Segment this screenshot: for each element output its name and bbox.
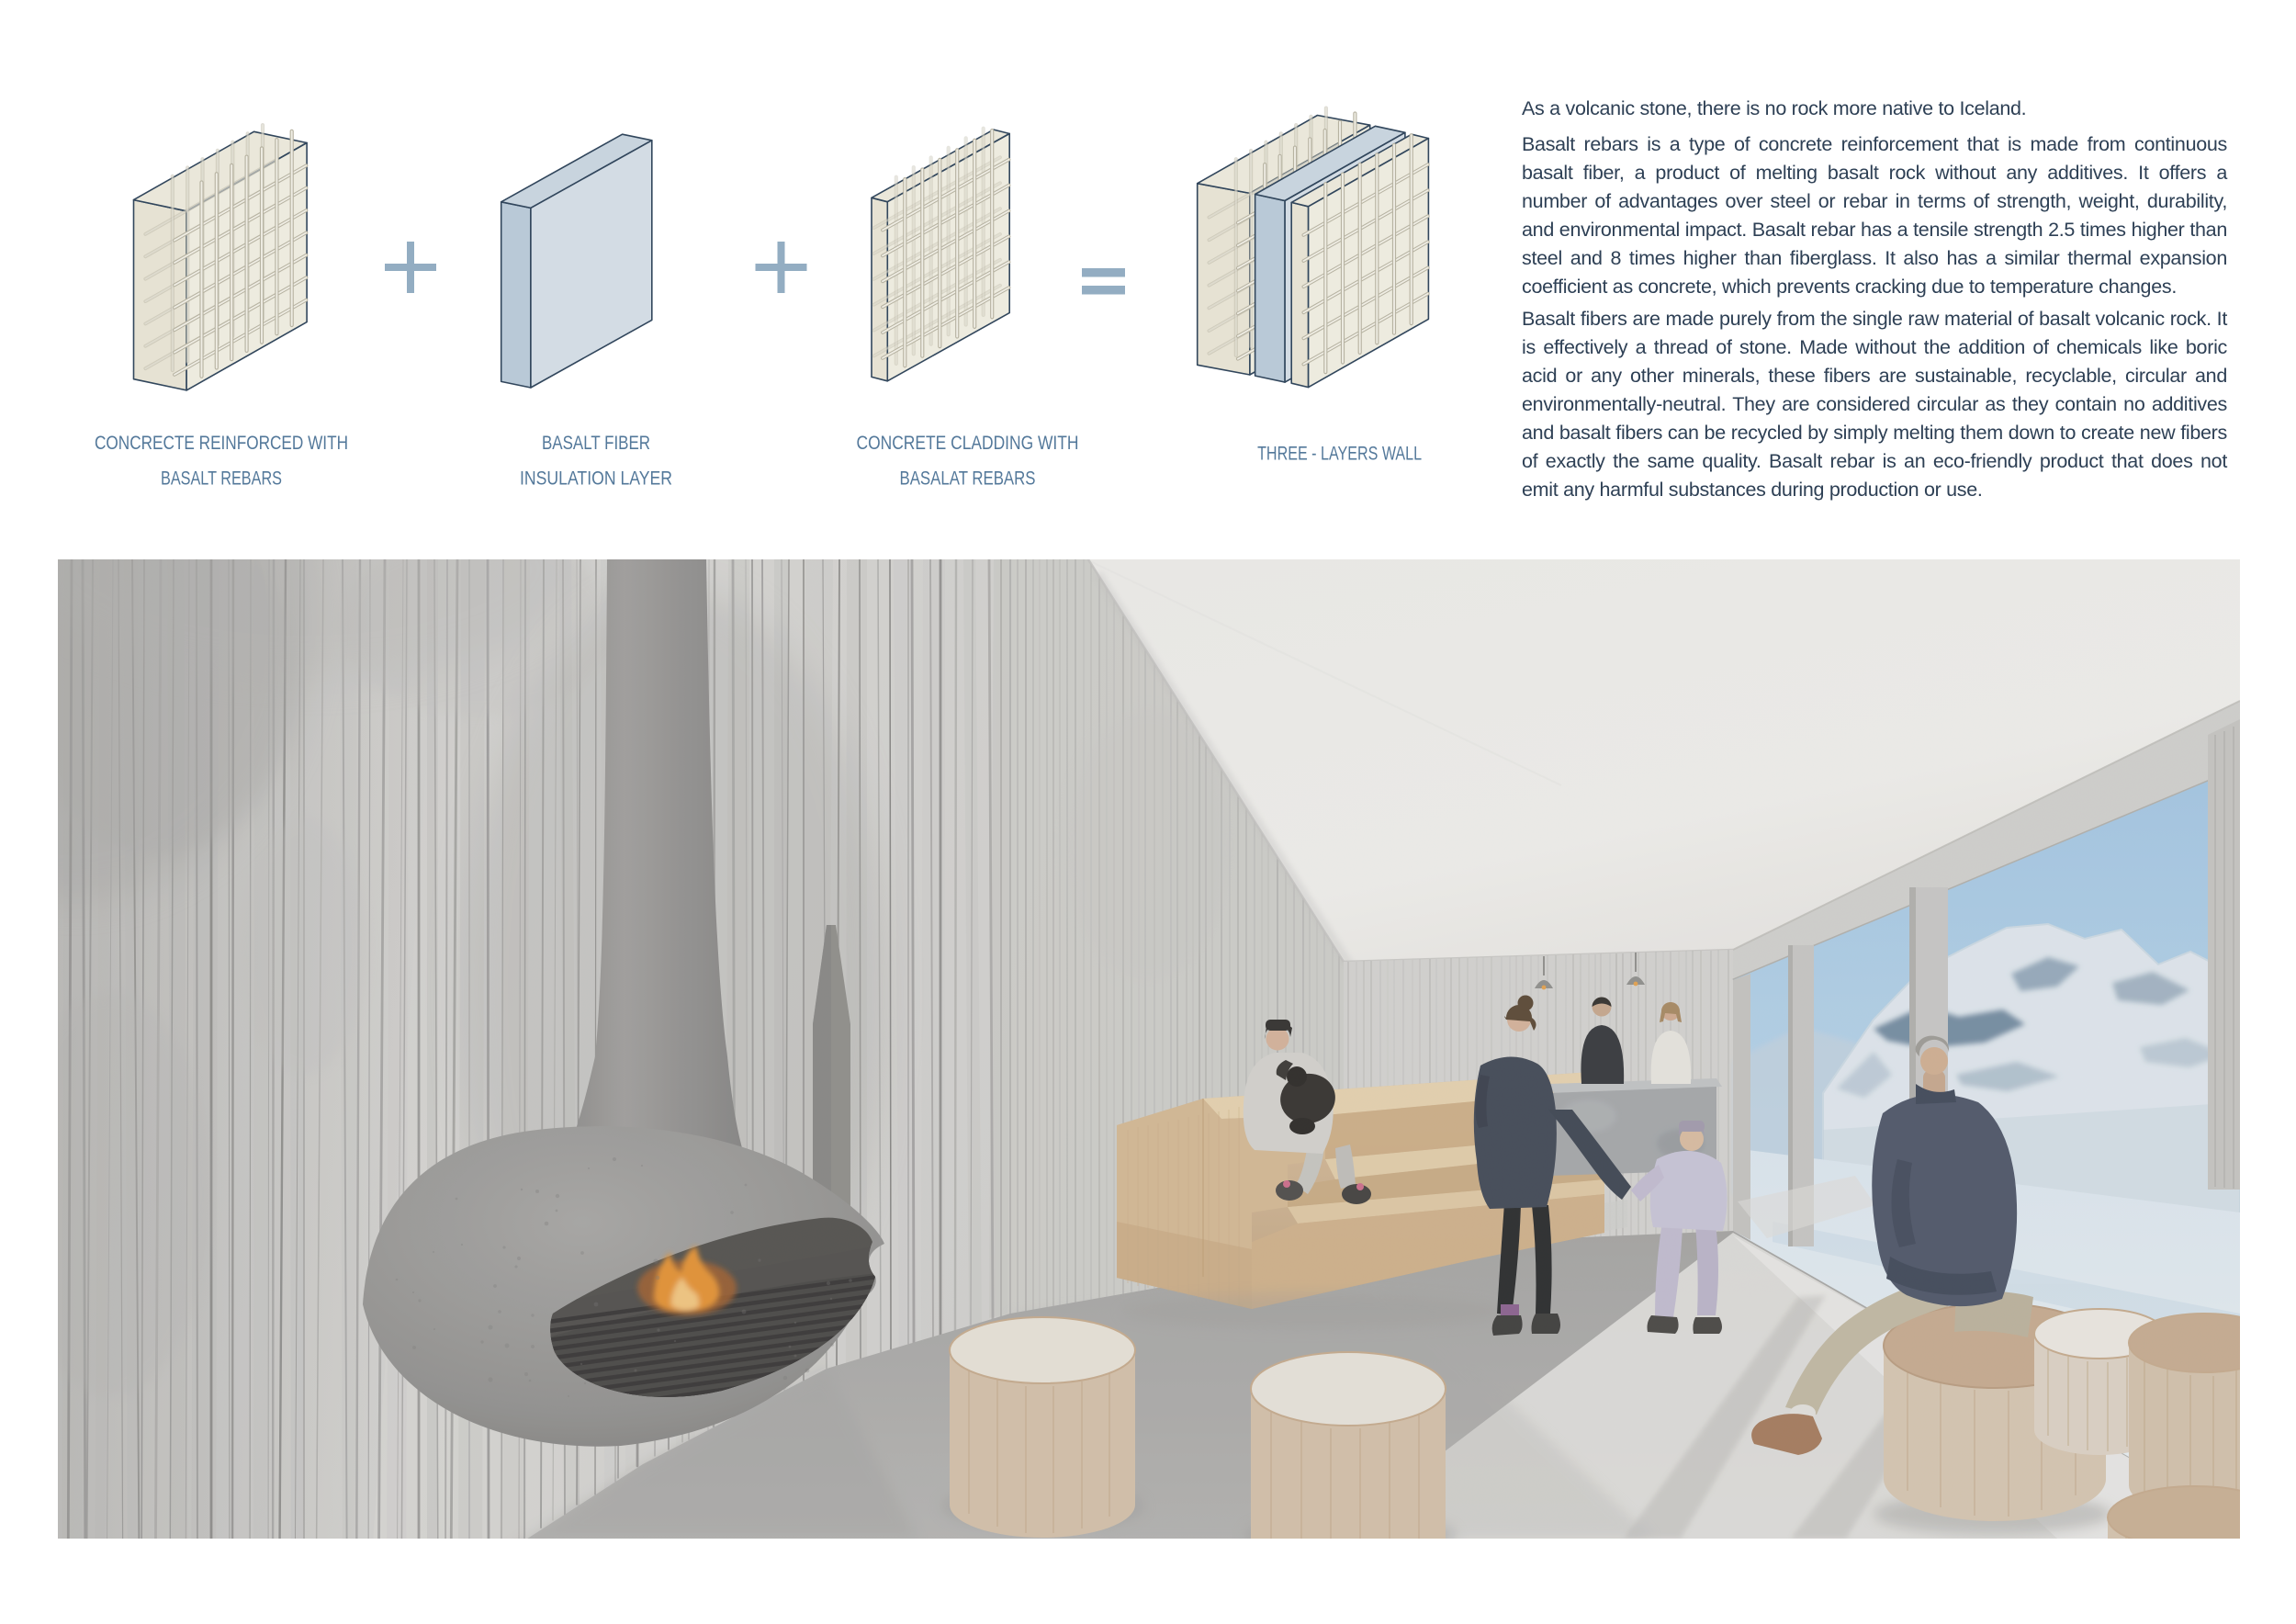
svg-text:BASALAT REBARS: BASALAT REBARS: [900, 468, 1036, 490]
svg-text:CONCRETE CLADDING WITH: CONCRETE CLADDING WITH: [857, 432, 1079, 454]
svg-text:BASALT FIBER: BASALT FIBER: [542, 432, 650, 454]
svg-text:BASALT REBARS: BASALT REBARS: [161, 468, 282, 490]
svg-text:CONCRECTE REINFORCED WITH: CONCRECTE REINFORCED WITH: [95, 432, 348, 454]
svg-text:THREE - LAYERS WALL: THREE - LAYERS WALL: [1257, 443, 1422, 465]
svg-text:INSULATION LAYER: INSULATION LAYER: [520, 468, 672, 490]
